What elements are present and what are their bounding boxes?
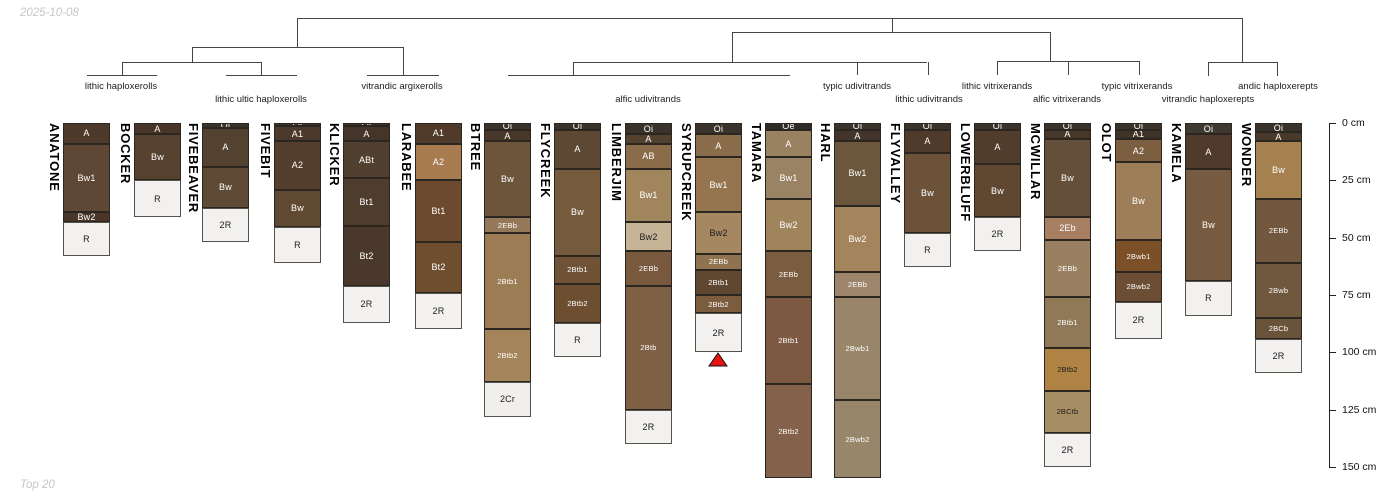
horizon-name: Oi (644, 124, 653, 134)
horizon-name: 2Btb1 (497, 277, 518, 286)
horizon-band: 2Btb1 (1044, 297, 1091, 347)
horizon-name: A (715, 141, 721, 151)
horizon-band: A (765, 130, 812, 158)
horizon-band: 2R (1115, 302, 1162, 339)
date-label: 2025-10-08 (20, 7, 79, 19)
profile-label: FLYCREEK (539, 123, 552, 198)
dendrogram-segment (403, 47, 404, 75)
horizon-band: A (974, 130, 1021, 164)
depth-tick (1329, 295, 1336, 296)
horizon-band: Bt2 (343, 226, 390, 286)
horizon-name: R (154, 194, 161, 204)
depth-tick-label: 100 cm (1342, 346, 1376, 358)
depth-tick (1329, 123, 1336, 124)
horizon-band: A (904, 130, 951, 153)
horizon-band: R (904, 233, 951, 267)
horizon-band: 2Cr (484, 382, 531, 416)
depth-tick (1329, 180, 1336, 181)
group-label: vitrandic argixerolls (192, 81, 612, 92)
horizon-band: Bw (202, 167, 249, 208)
horizon-name: 2EBb (1058, 264, 1077, 273)
horizon-name: 2Btb1 (778, 336, 799, 345)
horizon-band: 2Bwb1 (1115, 240, 1162, 272)
horizon-band: A2 (1115, 139, 1162, 162)
depth-tick-label: 150 cm (1342, 461, 1376, 473)
horizon-band: 2EBb (765, 251, 812, 297)
dendrogram-segment (732, 32, 1050, 33)
horizon-band: 2Bwb (1255, 263, 1302, 318)
horizon-name: 2R (713, 328, 725, 338)
horizon-band: 2EBb (484, 217, 531, 233)
profile-label: LIMBERJIM (610, 123, 623, 202)
horizon-band: A (202, 128, 249, 167)
horizon-name: 2EBb (1269, 226, 1288, 235)
horizon-band: 2EBb (1255, 199, 1302, 263)
horizon-name: Bw2 (848, 234, 866, 244)
horizon-band: Oi (834, 123, 881, 130)
horizon-name: Oi (503, 123, 512, 130)
footer-label: Top 20 (20, 479, 55, 491)
horizon-band: Oi (904, 123, 951, 130)
horizon-name: Oi (993, 123, 1002, 130)
horizon-name: Oi (573, 123, 582, 130)
horizon-band: A (1044, 130, 1091, 139)
horizon-band: Oi (484, 123, 531, 130)
horizon-band: 2Btb2 (554, 284, 601, 323)
horizon-name: Bt1 (431, 206, 445, 216)
horizon-name: 2R (361, 299, 373, 309)
horizon-name: A (154, 124, 160, 134)
horizon-band: A (63, 123, 110, 144)
dendrogram-segment (892, 18, 893, 31)
horizon-name: 2R (1273, 351, 1285, 361)
horizon-name: A (854, 131, 860, 141)
horizon-name: 2Btb2 (567, 299, 588, 308)
depth-tick-label: 125 cm (1342, 404, 1376, 416)
horizon-band: Bw1 (695, 157, 742, 212)
dendrogram-segment (192, 47, 193, 62)
horizon-band: 2EBb (1044, 240, 1091, 297)
horizon-name: 2EBb (498, 221, 517, 230)
group-label: lithic ultic haploxerolls (51, 94, 471, 105)
horizon-name: 2R (433, 306, 445, 316)
horizon-name: 2Btb2 (708, 300, 729, 309)
horizon-band: 2EBb (834, 272, 881, 297)
horizon-name: 2Bwb1 (846, 344, 870, 353)
horizon-name: Bw (151, 152, 164, 162)
horizon-band: A1 (415, 123, 462, 144)
dendrogram-segment (857, 62, 858, 75)
horizon-name: Bw (1202, 220, 1215, 230)
horizon-band: Bw (484, 141, 531, 217)
horizon-name: Oe (782, 123, 794, 130)
horizon-name: Bw2 (779, 220, 797, 230)
horizon-name: Bw1 (709, 180, 727, 190)
profile-label: HARL (819, 123, 832, 162)
horizon-name: 2R (992, 229, 1004, 239)
horizon-band: Bw1 (625, 169, 672, 222)
profile-label: KAMELA (1170, 123, 1183, 183)
horizon-band: 2Eb (1044, 217, 1091, 240)
horizon-name: 2EBb (848, 280, 867, 289)
horizon-band: Bw2 (765, 199, 812, 252)
dendrogram-segment (122, 62, 262, 63)
horizon-name: 2BCb (1269, 324, 1289, 333)
horizon-band: A (625, 134, 672, 143)
horizon-band: R (63, 222, 110, 256)
horizon-name: A1 (1133, 130, 1144, 139)
profile-label: LOWERBLUFF (959, 123, 972, 222)
group-label: vitrandic haploxerepts (998, 94, 1400, 105)
horizon-name: 2Btb1 (567, 265, 588, 274)
dendrogram-segment (573, 62, 928, 63)
horizon-band: Bw2 (834, 206, 881, 273)
profile-label: SYRUPCREEK (680, 123, 693, 221)
horizon-name: 2EBb (639, 264, 658, 273)
horizon-name: R (574, 335, 581, 345)
profile-label: FIVEBEAVER (187, 123, 200, 213)
profile-label: WONDER (1240, 123, 1253, 187)
horizon-band: Bw (274, 190, 321, 228)
dendrogram-segment (297, 18, 298, 46)
horizon-name: A (1275, 132, 1281, 141)
profile-label: ANATONE (48, 123, 61, 192)
horizon-band: Bw1 (63, 144, 110, 213)
horizon-band: Bw (554, 169, 601, 256)
horizon-name: A2 (292, 160, 303, 170)
horizon-band: 2R (343, 286, 390, 323)
horizon-band: R (134, 180, 181, 217)
horizon-name: Oi (853, 123, 862, 130)
horizon-name: R (294, 240, 301, 250)
horizon-band: Oi (1044, 123, 1091, 130)
horizon-name: 2Bwb1 (1127, 252, 1151, 261)
dendrogram-segment (226, 75, 298, 76)
horizon-name: 2EBb (709, 257, 728, 266)
horizon-name: Bw2 (77, 212, 95, 221)
horizon-name: Bw (991, 186, 1004, 196)
horizon-name: 2BCtb (1057, 407, 1079, 416)
horizon-name: Bw (291, 203, 304, 213)
horizon-band: Bw (1115, 162, 1162, 240)
dendrogram-segment (732, 32, 733, 62)
horizon-band: R (274, 227, 321, 263)
depth-tick (1329, 238, 1336, 239)
horizon-name: Bt2 (431, 262, 445, 272)
horizon-name: Oi (923, 123, 932, 130)
horizon-band: A2 (274, 141, 321, 189)
horizon-band: 2R (202, 208, 249, 242)
horizon-name: A1 (433, 128, 444, 138)
depth-tick (1329, 410, 1336, 411)
horizon-name: Bw1 (779, 173, 797, 183)
horizon-band: Oi (1115, 123, 1162, 130)
horizon-name: 2R (220, 220, 232, 230)
horizon-band: Bw (974, 164, 1021, 217)
horizon-name: 2Btb2 (778, 427, 799, 436)
horizon-band: Oi (554, 123, 601, 130)
profile-label: FLYVALLEY (889, 123, 902, 204)
horizon-name: R (83, 234, 90, 244)
dendrogram-segment (1277, 62, 1278, 76)
horizon-band: A (1185, 134, 1232, 168)
profile-label: BOCKER (119, 123, 132, 184)
horizon-name: R (924, 245, 931, 255)
horizon-name: A2 (433, 157, 444, 167)
horizon-band: R (1185, 281, 1232, 315)
horizon-name: Bt1 (359, 197, 373, 207)
horizon-band: Bt1 (415, 180, 462, 242)
profile-label: BTREE (469, 123, 482, 171)
horizon-band: 2R (974, 217, 1021, 251)
horizon-name: Oi (1063, 123, 1072, 130)
horizon-band: 2Bwb2 (1115, 272, 1162, 302)
horizon-band: A2 (415, 144, 462, 181)
horizon-name: Oi (1134, 123, 1143, 130)
horizon-name: Oi (714, 124, 723, 134)
depth-tick-label: 0 cm (1342, 117, 1365, 129)
profile-label: KLICKER (328, 123, 341, 186)
dendrogram-segment (573, 62, 574, 75)
horizon-band: 2Btb2 (1044, 348, 1091, 392)
horizon-name: 2Btb2 (1057, 365, 1078, 374)
horizon-band: Bt1 (343, 178, 390, 226)
horizon-name: A2 (1133, 146, 1144, 156)
horizon-name: A (222, 142, 228, 152)
horizon-band: 2R (1044, 433, 1091, 467)
depth-tick-label: 75 cm (1342, 289, 1371, 301)
dendrogram-segment (87, 75, 158, 76)
dendrogram-segment (261, 62, 262, 75)
horizon-band: R (554, 323, 601, 357)
horizon-band: Bw1 (834, 141, 881, 205)
dendrogram-segment (508, 75, 791, 76)
horizon-band: Bw (134, 134, 181, 180)
horizon-name: A (1064, 130, 1070, 139)
depth-tick (1329, 467, 1336, 468)
horizon-band: Oi (625, 123, 672, 134)
horizon-band: Bw2 (625, 222, 672, 252)
horizon-band: A (695, 134, 742, 157)
horizon-band: Bw (1044, 139, 1091, 217)
horizon-band: Bw (904, 153, 951, 233)
horizon-name: Bw (1132, 196, 1145, 206)
horizon-name: A (574, 144, 580, 154)
profile-label: OLOT (1100, 123, 1113, 162)
horizon-name: AB (642, 151, 654, 161)
horizon-name: 2Btb1 (708, 278, 729, 287)
horizon-name: Bw1 (639, 190, 657, 200)
dendrogram-segment (1242, 18, 1243, 61)
horizon-name: Oi (1274, 123, 1283, 132)
horizon-name: 2R (1062, 445, 1074, 455)
horizon-band: 2Btb1 (765, 297, 812, 384)
horizon-band: 2Btb2 (765, 384, 812, 478)
horizon-name: 2R (1133, 315, 1145, 325)
horizon-band: 2BCtb (1044, 391, 1091, 432)
horizon-name: 2Btb2 (497, 351, 518, 360)
horizon-band: Oi (1185, 123, 1232, 134)
horizon-band: Oe (765, 123, 812, 130)
horizon-name: A (83, 128, 89, 138)
dendrogram-segment (297, 18, 1242, 19)
horizon-name: R (1205, 293, 1212, 303)
dendrogram-segment (192, 47, 403, 48)
horizon-name: A (924, 136, 930, 146)
horizon-band: 2R (415, 293, 462, 330)
profile-label: FIVEBIT (259, 123, 272, 178)
horizon-name: Bt2 (359, 251, 373, 261)
horizon-band: A (1255, 132, 1302, 141)
dendrogram-segment (928, 62, 929, 75)
horizon-name: 2Btb (640, 343, 656, 352)
horizon-band: 2Btb1 (554, 256, 601, 284)
horizon-band: A (554, 130, 601, 169)
horizon-band: Bw (1185, 169, 1232, 281)
horizon-band: AB (625, 144, 672, 169)
horizon-band: Oi (974, 123, 1021, 130)
horizon-name: 2Bwb2 (846, 435, 870, 444)
horizon-name: Bw (921, 188, 934, 198)
horizon-band: Bt2 (415, 242, 462, 292)
horizon-name: 2Cr (500, 394, 515, 404)
dendrogram-segment (997, 61, 998, 75)
horizon-band: 2R (695, 313, 742, 352)
horizon-band: Bw1 (765, 157, 812, 198)
group-label: andic haploxerepts (1068, 81, 1400, 92)
dendrogram-segment (1068, 61, 1069, 75)
horizon-name: 2R (643, 422, 655, 432)
horizon-name: ABt (359, 155, 374, 165)
horizon-name: 2Bwb2 (1127, 282, 1151, 291)
horizon-band: 2Btb (625, 286, 672, 410)
horizon-name: Bw (219, 182, 232, 192)
horizon-name: Oi (1204, 124, 1213, 134)
dendrogram-segment (1139, 61, 1140, 75)
horizon-band: 2Btb1 (484, 233, 531, 329)
dendrogram-segment (367, 75, 439, 76)
horizon-name: Bw2 (639, 232, 657, 242)
horizon-band: 2Bwb1 (834, 297, 881, 400)
horizon-band: 2EBb (695, 254, 742, 270)
dendrogram-segment (1050, 32, 1051, 61)
horizon-name: A (504, 131, 510, 141)
horizon-band: Oi (1255, 123, 1302, 132)
horizon-band: 2R (625, 410, 672, 444)
horizon-name: 2EBb (779, 270, 798, 279)
horizon-band: A (343, 126, 390, 141)
horizon-name: Bw (571, 207, 584, 217)
horizon-band: Bw2 (63, 212, 110, 221)
horizon-name: 2Eb (1059, 223, 1076, 233)
horizon-band: Bw (1255, 141, 1302, 198)
horizon-band: 2EBb (625, 251, 672, 285)
horizon-name: Bw1 (848, 168, 866, 178)
depth-tick-label: 25 cm (1342, 174, 1371, 186)
horizon-band: 2Btb1 (695, 270, 742, 295)
horizon-band: A (134, 123, 181, 134)
horizon-band: Oi (695, 123, 742, 134)
horizon-band: 2R (1255, 339, 1302, 373)
depth-tick (1329, 352, 1336, 353)
horizon-name: 2Bwb (1269, 286, 1289, 295)
horizon-name: Bw1 (77, 173, 95, 183)
horizon-band: A1 (1115, 130, 1162, 139)
horizon-band: 2Bwb2 (834, 400, 881, 478)
soil-dendrogram-figure: 2025-10-08 Top 20 lithic haploxerollslit… (0, 0, 1400, 500)
dendrogram-segment (122, 62, 123, 75)
profile-label: MCWILLAR (1029, 123, 1042, 200)
horizon-name: A (994, 142, 1000, 152)
horizon-band: 2BCb (1255, 318, 1302, 339)
horizon-name: Bw2 (709, 228, 727, 238)
horizon-band: A (484, 130, 531, 141)
flagged-profile-marker-triangle-icon (708, 352, 728, 368)
horizon-name: Bw (1272, 165, 1285, 175)
horizon-band: Bw2 (695, 212, 742, 253)
horizon-name: A1 (292, 129, 303, 139)
horizon-name: Bw (501, 174, 514, 184)
dendrogram-segment (1208, 62, 1209, 76)
horizon-name: A (645, 134, 651, 143)
horizon-band: A1 (274, 126, 321, 141)
depth-tick-label: 50 cm (1342, 232, 1371, 244)
horizon-name: A (785, 139, 791, 149)
profile-label: LARABEE (400, 123, 413, 191)
horizon-name: A (1205, 147, 1211, 157)
horizon-band: ABt (343, 141, 390, 178)
horizon-name: Bw (1061, 173, 1074, 183)
horizon-name: 2Btb1 (1057, 318, 1078, 327)
dendrogram-segment (1208, 62, 1277, 63)
horizon-band: A (834, 130, 881, 141)
horizon-band: 2Btb2 (695, 295, 742, 313)
horizon-band: 2Btb2 (484, 329, 531, 382)
horizon-name: A (363, 129, 369, 139)
profile-label: TAMARA (750, 123, 763, 183)
